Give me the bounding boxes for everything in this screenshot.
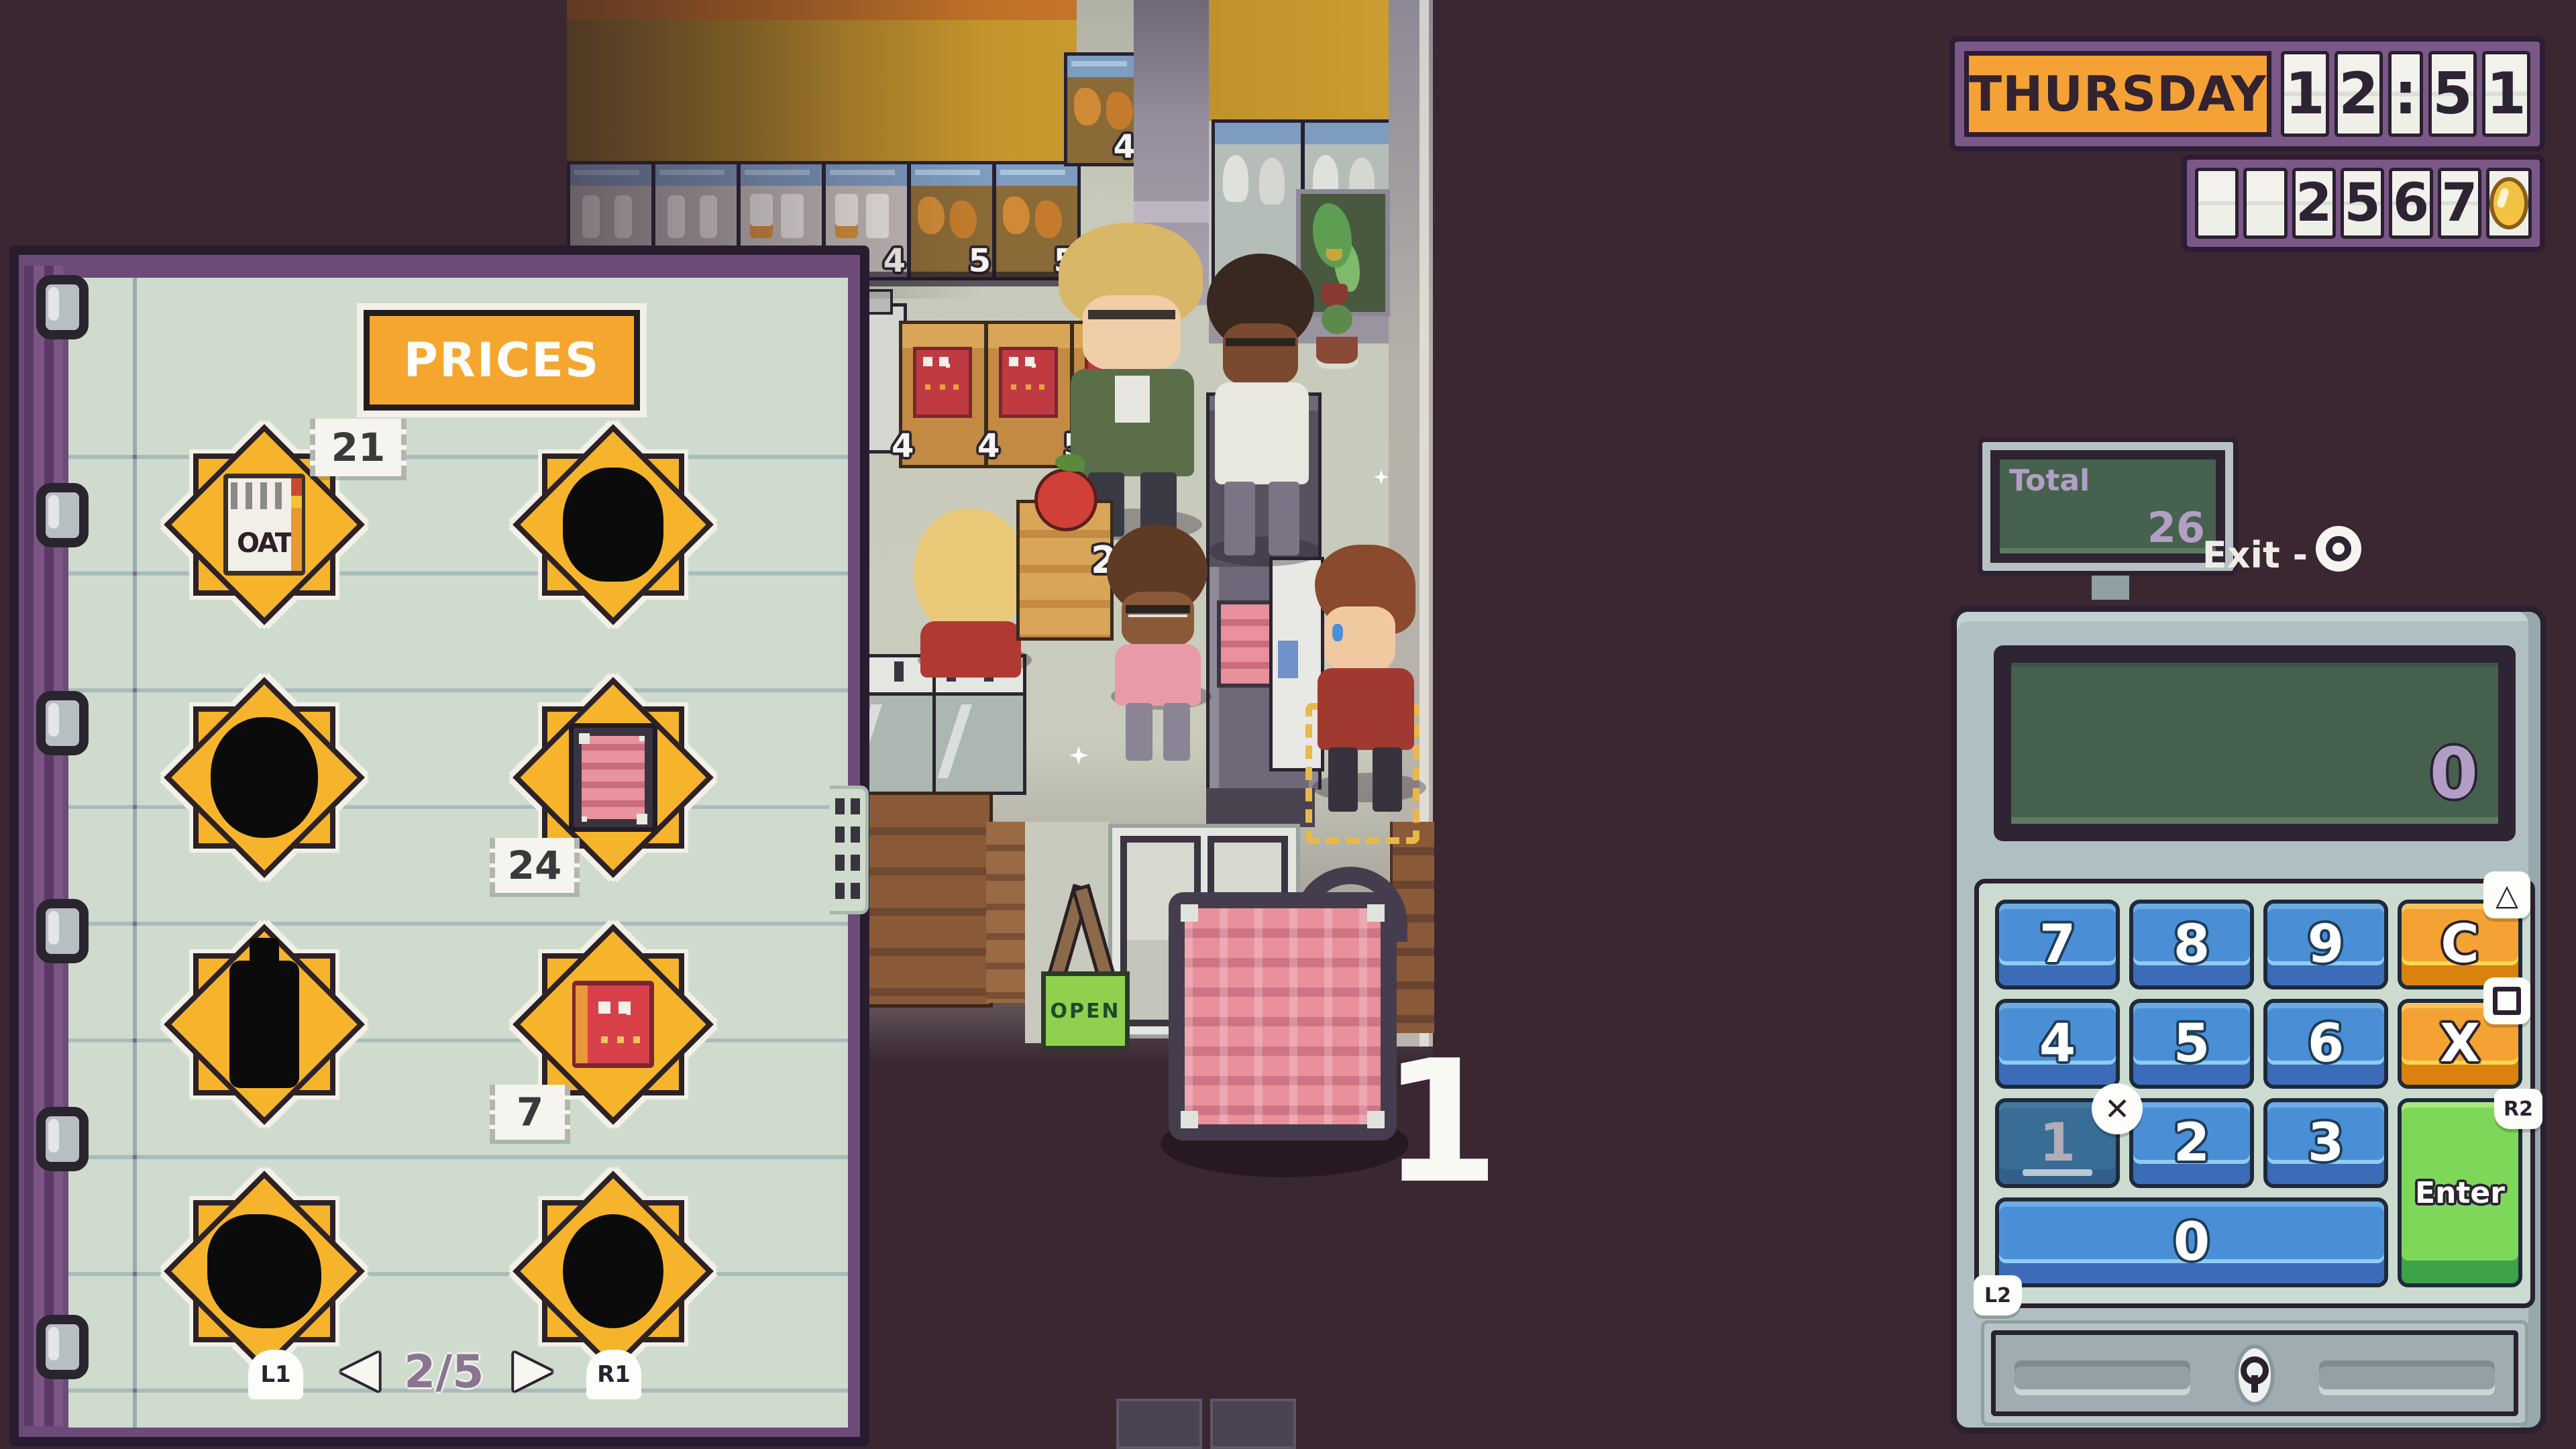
cash-register: 0 7 8 9 C 4 5 6 X 1 2 3 Enter 0 △ ✕ R2 [1951,606,2546,1434]
crate-label-art [999,347,1058,418]
open-sign-stand [1044,884,1119,985]
binder-ring-icon [36,483,89,547]
door-mats [1116,1399,1296,1449]
r1-shoulder-badge: R1 [586,1350,641,1399]
monitor-stand [2092,576,2129,600]
circle-button-icon[interactable] [2316,526,2361,572]
eye-icon [1332,624,1343,641]
alcove-backboard [1209,0,1389,121]
l1-shoulder-badge: L1 [248,1350,303,1399]
price-tag: 24 [490,838,580,893]
time-display: 1 2 : 5 1 [2281,51,2530,137]
price-item-cracker[interactable]: 7 [513,924,714,1125]
drawer-handle [2015,1360,2190,1395]
apple-crate: 2 [1016,500,1114,641]
notebook-title-banner: PRICES [364,310,640,411]
star-badge-icon [164,924,365,1125]
star-badge-icon [164,677,365,878]
keyhole-icon [2235,1344,2275,1406]
stock-count: 4 [892,430,914,462]
key-6[interactable]: 6 [2263,999,2388,1089]
price-item-unknown[interactable] [164,677,365,878]
cash-drawer [1981,1320,2528,1426]
mystery-item-icon [207,1214,321,1328]
open-sign: OPEN [1041,971,1130,1051]
day-display: THURSDAY [1964,51,2271,137]
key-5[interactable]: 5 [2129,999,2254,1089]
game-screen: 5 5 4 4 5 5 4 5 5 4 4 5 [0,0,2576,1449]
meat-basket [1169,892,1397,1140]
total-label: Total [2009,464,2090,498]
crate-label-art [913,347,972,418]
notebook-paper: PRICES OAT 21 [68,278,848,1428]
entered-amount: 0 [2430,733,2478,814]
key-2[interactable]: 2 [2129,1098,2254,1188]
key-8[interactable]: 8 [2129,900,2254,989]
coin-icon [2489,177,2528,229]
glasses-icon [1126,605,1190,613]
binder-ring-icon [36,899,89,963]
stock-count: 4 [977,430,1000,462]
customer-dark-man [1204,254,1322,576]
key-9[interactable]: 9 [2263,900,2388,989]
register-screen-bezel: 0 [1994,645,2516,841]
register-screen: 0 [2011,663,2498,824]
prices-notebook: PRICES OAT 21 [9,246,869,1446]
stock-count: 4 [1114,131,1136,163]
coin-cell [2486,168,2532,239]
drawer-handle [2319,1360,2495,1395]
cracker-box-icon [572,981,654,1068]
binder-ring-icon [36,275,89,339]
mystery-item-icon [563,1214,663,1328]
cashier-player [1312,545,1419,800]
next-page-arrow[interactable]: ▶ [514,1343,552,1393]
oat-cereal-box-icon: OAT [223,474,305,576]
r2-shoulder-badge: R2 [2494,1089,2542,1129]
glasses-icon [1226,338,1295,346]
binder-ring-icon [36,1107,89,1171]
money-display: 2 5 6 7 [2195,168,2532,239]
price-tag: 7 [490,1085,570,1140]
square-button-icon [2483,977,2530,1024]
notebook-side-tab[interactable] [830,786,869,914]
price-item-oat[interactable]: OAT 21 [164,424,365,625]
mystery-bottle-icon [229,961,299,1088]
mystery-item-icon [563,468,663,582]
price-item-unknown[interactable] [164,924,365,1125]
price-tag: 21 [310,419,407,476]
l2-shoulder-badge: L2 [1974,1275,2022,1316]
customer-blonde-back [914,508,1028,676]
conveyor-base [1206,788,1315,827]
customer-kid-pink [1106,525,1210,719]
bacon-pack-icon [569,723,657,832]
notebook-title: PRICES [404,333,600,388]
page-indicator: 2/5 [404,1346,484,1399]
keypad-panel: 7 8 9 C 4 5 6 X 1 2 3 Enter 0 △ ✕ R2 L2 [1974,879,2535,1308]
glasses-icon [1088,310,1175,319]
page-navigation: L1 ◀ 2/5 ▶ R1 [68,1342,848,1409]
key-7[interactable]: 7 [1995,900,2120,989]
exit-label: Exit - [2192,534,2308,576]
clock-widget: THURSDAY 1 2 : 5 1 [1949,36,2545,152]
brick-column [986,822,1025,1003]
stock-crate: 4 [899,321,987,468]
binder-ring-icon [36,691,89,755]
apple-icon [1034,468,1097,531]
price-item-bacon[interactable]: 24 [513,677,714,878]
star-badge-icon [513,424,714,625]
money-widget: 2 5 6 7 [2182,154,2545,252]
key-3[interactable]: 3 [2263,1098,2388,1188]
cross-button-icon: ✕ [2092,1083,2143,1134]
key-4[interactable]: 4 [1995,999,2120,1089]
price-item-unknown[interactable] [513,424,714,625]
mystery-item-icon [211,717,318,838]
key-0[interactable]: 0 [1995,1197,2388,1287]
quantity-popup: 1 [1382,1038,1499,1207]
triangle-button-icon: △ [2483,871,2530,918]
binder-ring-icon [36,1315,89,1379]
prev-page-arrow[interactable]: ◀ [341,1343,379,1393]
shelf-unit-upper: 4 [1064,52,1140,166]
